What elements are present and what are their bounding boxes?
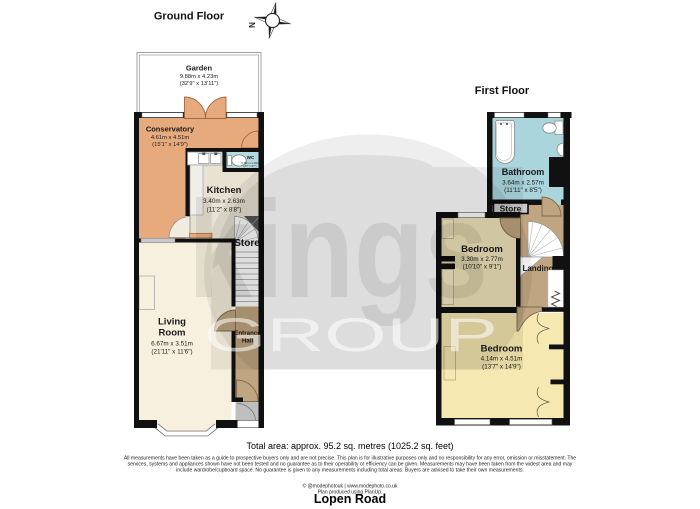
svg-text:Total area: approx. 95.2 sq. m: Total area: approx. 95.2 sq. metres (102… — [246, 441, 453, 451]
svg-text:(15'1" x 14'9"): (15'1" x 14'9") — [152, 142, 188, 148]
svg-text:Lopen Road: Lopen Road — [314, 492, 386, 506]
svg-text:N: N — [248, 22, 257, 28]
svg-text:9.88m x 4.23m: 9.88m x 4.23m — [180, 74, 219, 80]
svg-text:Ground Floor: Ground Floor — [154, 11, 225, 23]
svg-text:© @modephotouk | www.modephoto: © @modephotouk | www.modephoto.co.uk — [303, 483, 398, 490]
svg-text:(21'11" x 11'6"): (21'11" x 11'6") — [151, 349, 192, 356]
svg-text:First Floor: First Floor — [475, 85, 530, 97]
svg-text:Living: Living — [158, 317, 186, 328]
svg-text:Conservatory: Conservatory — [146, 125, 195, 134]
svg-text:Garden: Garden — [186, 64, 213, 73]
svg-text:(32'9" x 13'11"): (32'9" x 13'11") — [180, 81, 219, 87]
svg-text:include wardrobe/cupboard spac: include wardrobe/cupboard space. No guar… — [176, 468, 524, 474]
svg-text:kings: kings — [188, 173, 488, 327]
svg-text:4.61m x 4.51m: 4.61m x 4.51m — [151, 135, 190, 141]
svg-text:WC: WC — [247, 155, 255, 160]
svg-text:Room: Room — [159, 328, 186, 339]
svg-text:6.67m x 3.51m: 6.67m x 3.51m — [151, 341, 193, 348]
svg-text:GROUP: GROUP — [204, 309, 498, 362]
svg-text:(2'7" x 3'7"): (2'7" x 3'7") — [243, 164, 256, 168]
